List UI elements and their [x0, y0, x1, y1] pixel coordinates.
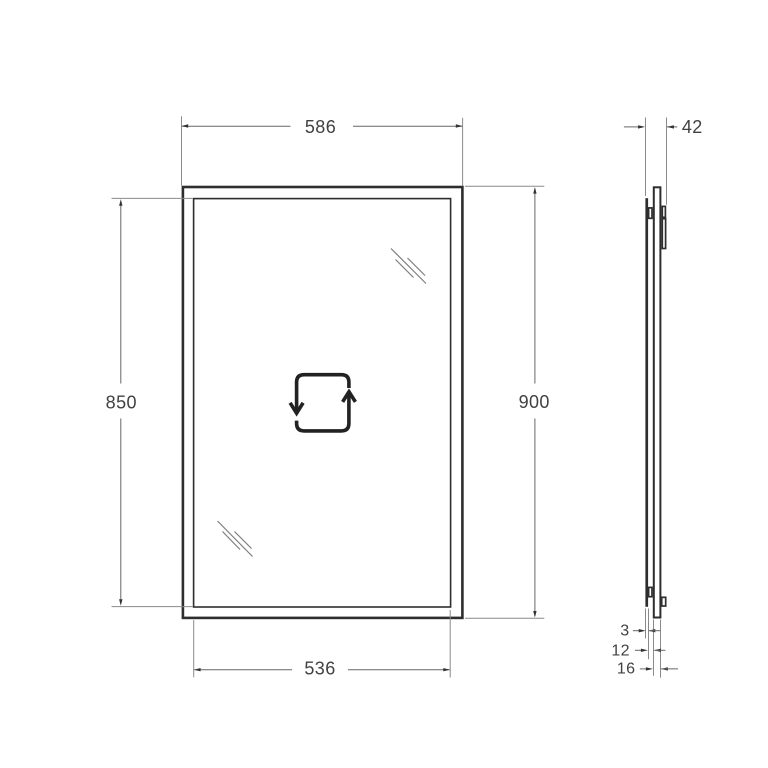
svg-text:3: 3 [620, 623, 629, 640]
svg-text:900: 900 [519, 392, 550, 412]
svg-text:42: 42 [682, 117, 703, 137]
svg-text:12: 12 [611, 643, 629, 660]
svg-text:586: 586 [305, 117, 336, 137]
svg-text:16: 16 [617, 661, 635, 678]
svg-text:536: 536 [304, 658, 335, 678]
svg-text:850: 850 [106, 392, 137, 412]
